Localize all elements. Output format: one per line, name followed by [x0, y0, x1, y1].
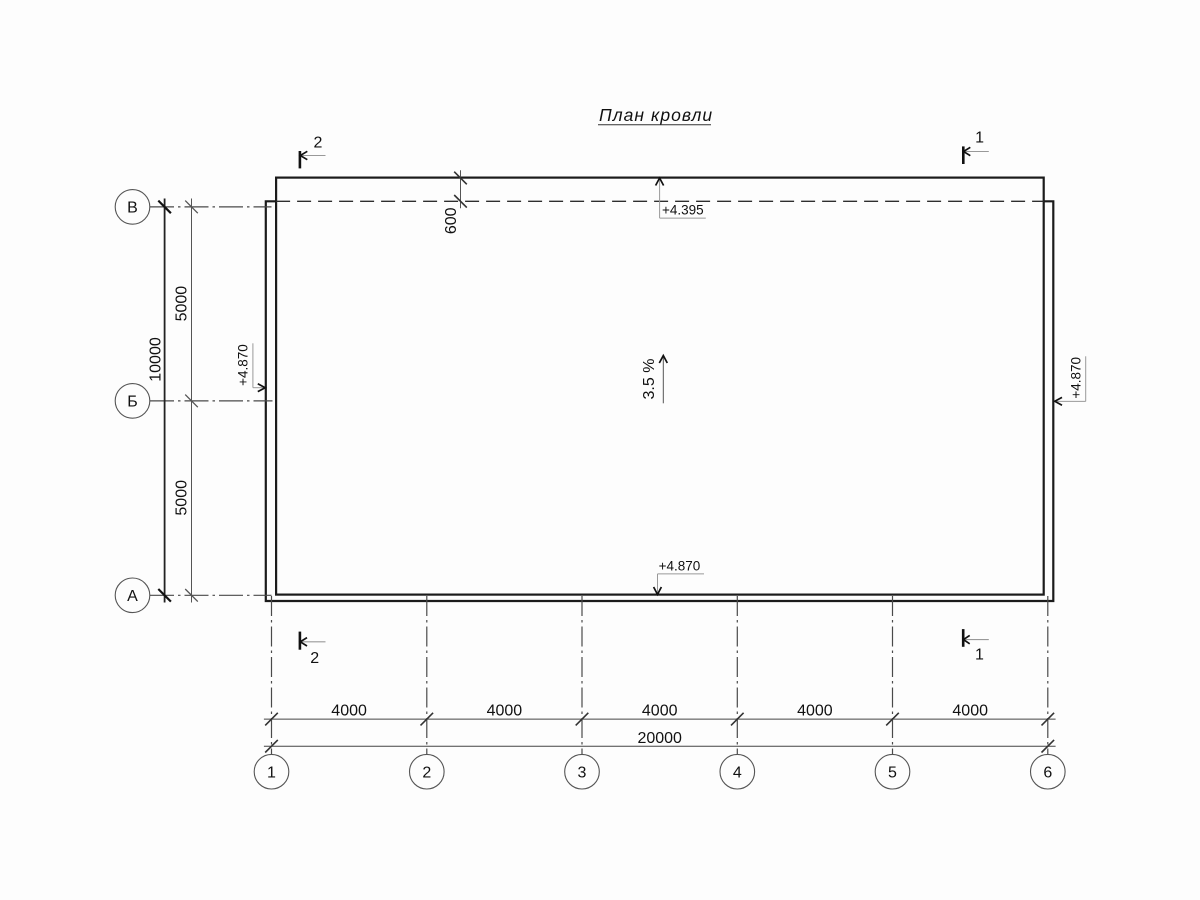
svg-text:+4.870: +4.870 — [235, 344, 250, 386]
svg-text:+4.395: +4.395 — [662, 202, 704, 217]
svg-text:2: 2 — [314, 134, 323, 151]
svg-text:+4.870: +4.870 — [659, 559, 701, 574]
svg-text:4000: 4000 — [642, 703, 678, 720]
svg-text:4000: 4000 — [331, 703, 367, 720]
svg-text:3.5 %: 3.5 % — [641, 359, 658, 400]
svg-text:5: 5 — [888, 764, 897, 781]
svg-text:1: 1 — [975, 129, 984, 146]
svg-text:4000: 4000 — [952, 703, 988, 720]
svg-text:5000: 5000 — [173, 480, 190, 516]
svg-text:6: 6 — [1043, 764, 1052, 781]
svg-text:+4.870: +4.870 — [1069, 357, 1084, 399]
svg-text:4: 4 — [733, 764, 742, 781]
svg-text:4000: 4000 — [487, 703, 523, 720]
svg-text:2: 2 — [422, 764, 431, 781]
svg-text:В: В — [127, 200, 138, 217]
svg-text:План кровли: План кровли — [599, 105, 713, 125]
svg-text:2: 2 — [310, 650, 319, 667]
svg-text:А: А — [127, 588, 138, 605]
svg-text:5000: 5000 — [173, 286, 190, 322]
svg-text:Б: Б — [127, 394, 138, 411]
svg-text:600: 600 — [443, 207, 460, 234]
svg-text:3: 3 — [578, 764, 587, 781]
svg-text:4000: 4000 — [797, 703, 833, 720]
svg-text:1: 1 — [267, 764, 276, 781]
svg-text:1: 1 — [975, 647, 984, 664]
svg-text:10000: 10000 — [147, 337, 164, 382]
svg-text:20000: 20000 — [637, 730, 682, 747]
